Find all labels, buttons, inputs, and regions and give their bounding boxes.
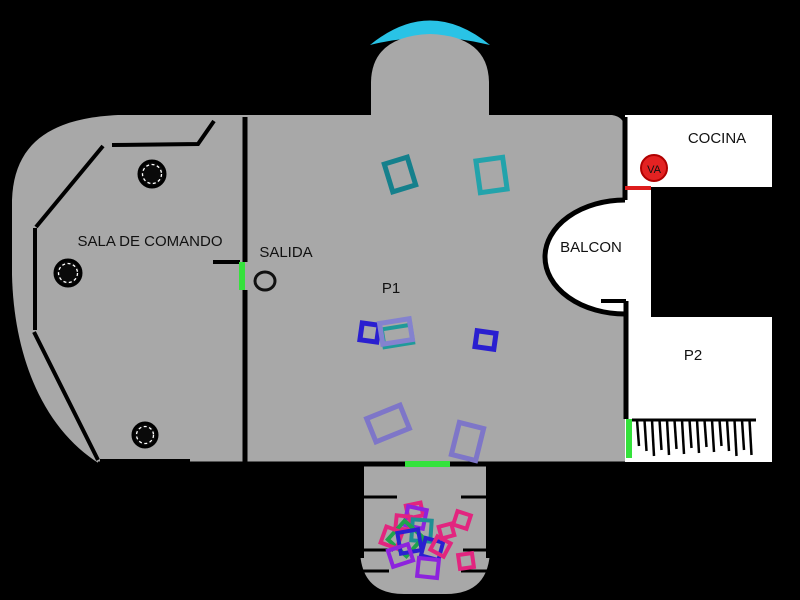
door-green-right [626, 419, 632, 458]
door-green-divider [239, 262, 245, 290]
label-sala-de-comando: SALA DE COMANDO [77, 233, 222, 250]
porthole-3 [133, 423, 157, 447]
floor-plan-svg: VA SALA DE COMANDO SALIDA P1 BALCON COCI… [0, 0, 800, 600]
label-salida: SALIDA [259, 244, 312, 261]
label-cocina: COCINA [688, 130, 746, 147]
floor-plan-canvas: VA SALA DE COMANDO SALIDA P1 BALCON COCI… [0, 0, 800, 600]
porthole-1 [139, 161, 165, 187]
door-green-bottom [405, 461, 450, 467]
bottom-corridor-floor [360, 464, 490, 594]
dark-block [651, 187, 772, 317]
label-p1: P1 [382, 280, 400, 297]
label-balcon: BALCON [560, 239, 622, 256]
dome-corridor-floor [371, 34, 489, 118]
alarm-label: VA [647, 164, 662, 176]
porthole-2 [55, 260, 81, 286]
label-p2: P2 [684, 347, 702, 364]
